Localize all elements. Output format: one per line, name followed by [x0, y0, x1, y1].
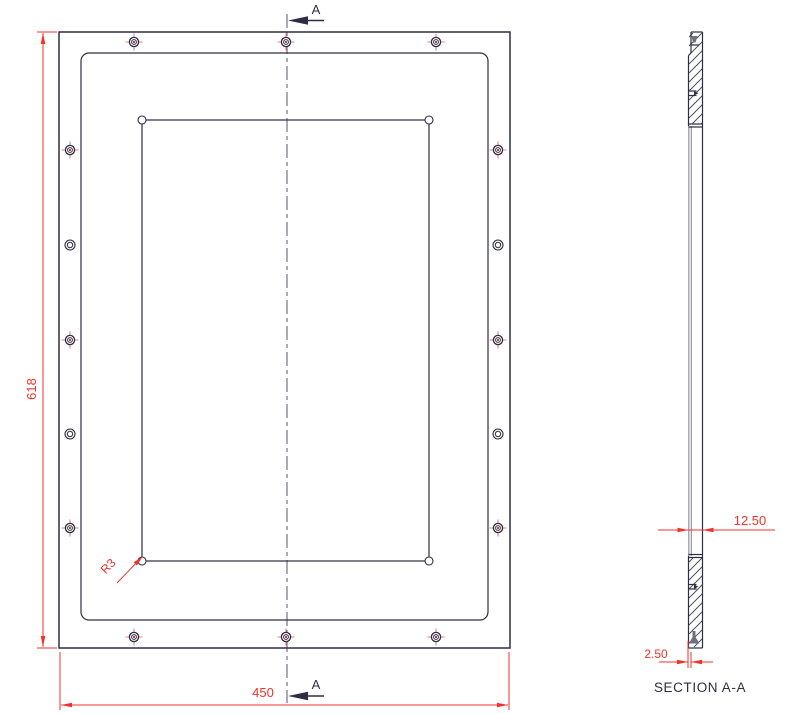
front-view: [59, 14, 510, 703]
dim-arrowhead: [497, 703, 508, 708]
dim-arrowhead: [677, 660, 688, 665]
corner-relief-circle: [138, 116, 146, 124]
section-dimensions: 12.50 2.50 SECTION A-A: [644, 513, 775, 695]
plain-hole: [65, 240, 75, 250]
section-step: [689, 53, 692, 56]
engineering-drawing: 618 450 R3 A A: [0, 0, 787, 714]
front-dimensions: 618 450 R3: [24, 32, 509, 710]
mounting-hole: [490, 332, 507, 349]
plate-outline: [59, 32, 510, 648]
thickness-dimension-text: 12.50: [734, 513, 767, 528]
fillet-radius-text: R3: [98, 556, 119, 577]
cut-label-bottom: A: [312, 677, 321, 692]
mounting-hole: [278, 34, 295, 51]
section-arrow-icon: [288, 16, 308, 24]
section-title: SECTION A-A: [654, 680, 746, 695]
height-dimension-text: 618: [24, 378, 39, 400]
hatch-line: [693, 114, 703, 124]
countersink-top: [692, 36, 698, 43]
mounting-hole: [62, 142, 79, 159]
mounting-hole: [278, 629, 295, 646]
corner-relief-circle: [425, 116, 433, 124]
mounting-hole: [126, 34, 143, 51]
dim-arrowhead: [678, 528, 689, 533]
cut-label-top: A: [312, 2, 321, 17]
dim-arrowhead: [703, 528, 714, 533]
web-dimension-text: 2.50: [644, 647, 668, 661]
dim-arrowhead: [41, 33, 46, 44]
corner-relief-circle: [425, 557, 433, 565]
dim-arrowhead: [691, 660, 702, 665]
mounting-hole: [126, 629, 143, 646]
hatch-line: [689, 558, 693, 562]
mounting-hole: [428, 34, 445, 51]
dim-arrowhead: [41, 636, 46, 647]
plain-hole: [65, 429, 75, 439]
mounting-hole: [62, 520, 79, 537]
mounting-hole: [428, 629, 445, 646]
width-dimension-text: 450: [252, 685, 274, 700]
section-cut-marks: A A: [288, 2, 324, 700]
plain-hole: [493, 240, 503, 250]
mounting-hole: [490, 520, 507, 537]
hole-countersink-wedge: [694, 585, 698, 590]
pocket-outline: [142, 120, 429, 561]
section-arrow-icon: [288, 692, 308, 700]
dim-arrowhead: [61, 703, 72, 708]
mounting-hole: [62, 332, 79, 349]
section-view: [689, 32, 703, 648]
plain-hole: [493, 429, 503, 439]
cad-drawing-canvas: 618 450 R3 A A: [0, 0, 787, 714]
mounting-hole: [490, 142, 507, 159]
